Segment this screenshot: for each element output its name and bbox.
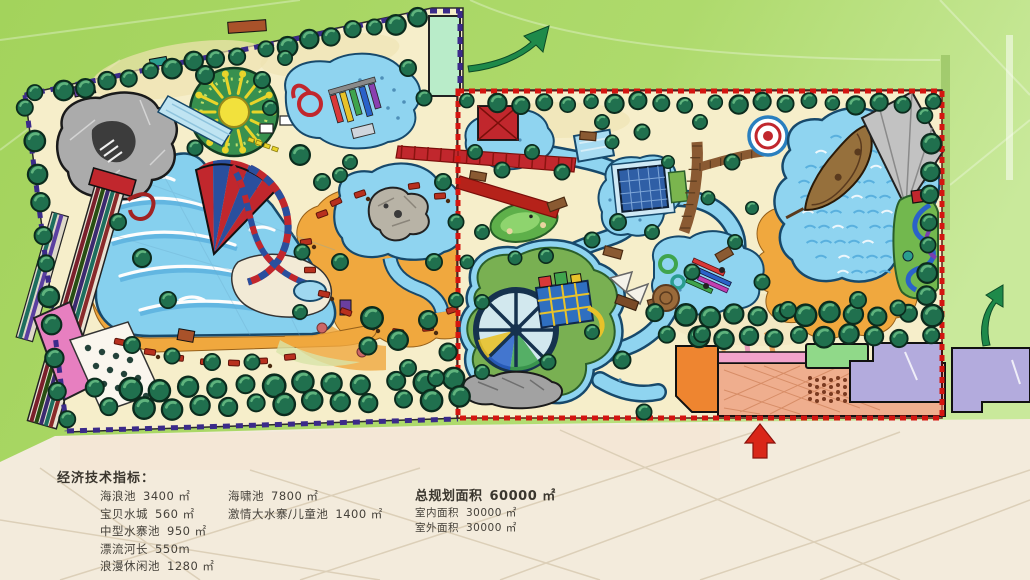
- spiral-feature: [749, 117, 787, 155]
- building-pink-strip: [718, 352, 806, 363]
- water-park-master-plan: 经济技术指标： 海浪池3400 ㎡ 宝贝水城560 ㎡ 中型水寨池950 ㎡ 漂…: [0, 0, 1030, 580]
- building-small-brown: [228, 20, 267, 34]
- site-plan-map: [0, 0, 1030, 580]
- building-mint: [429, 16, 460, 96]
- entrance-buildings: [676, 343, 945, 416]
- building-orange: [676, 346, 718, 412]
- paper-area: [0, 419, 1030, 580]
